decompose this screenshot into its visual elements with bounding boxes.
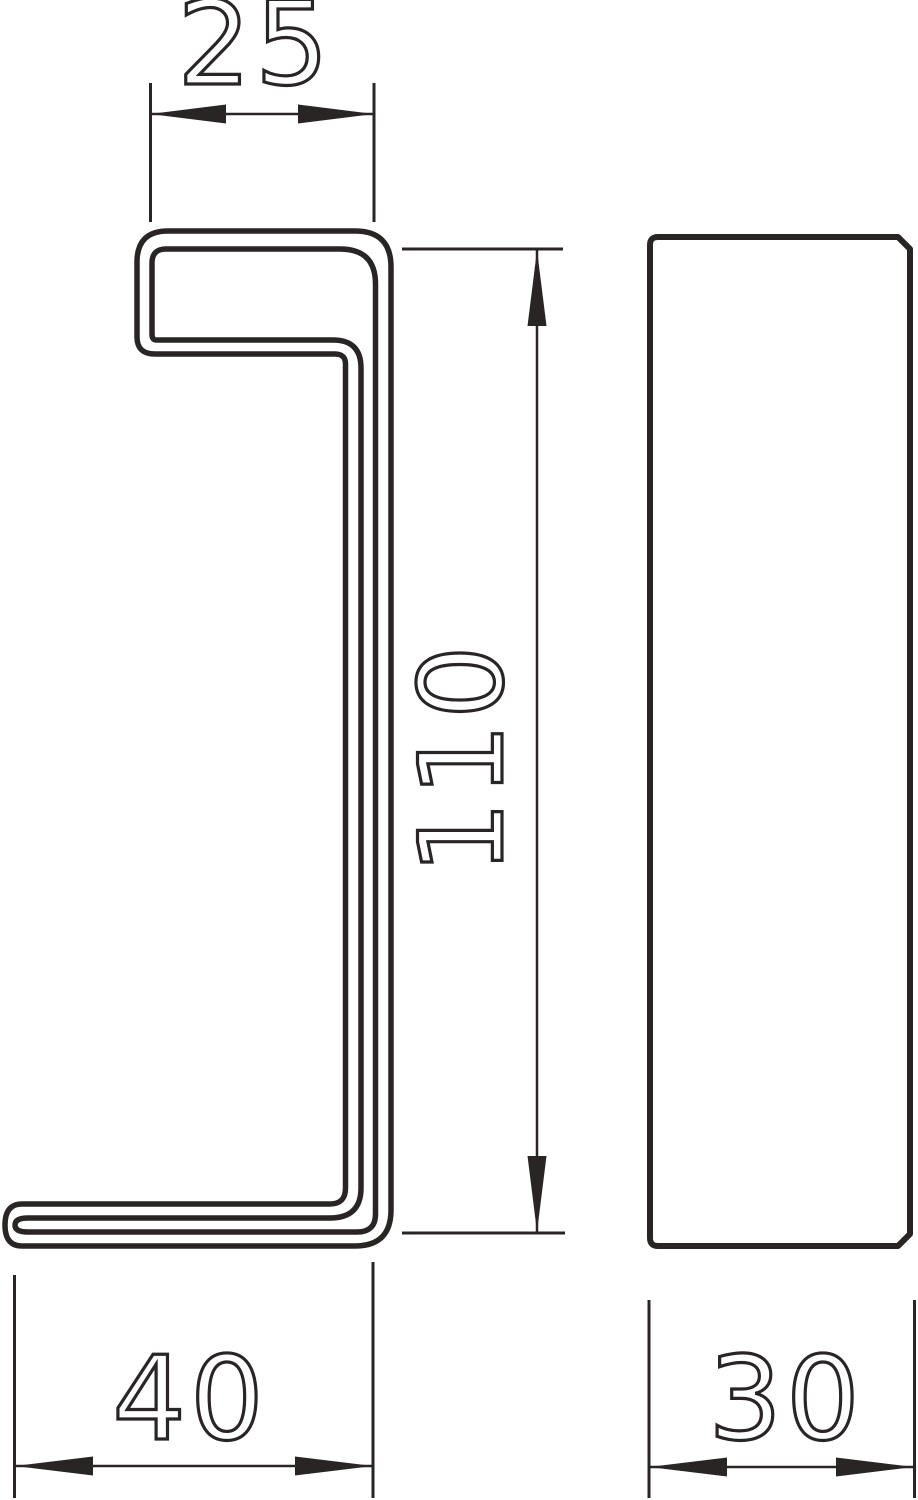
side-view-outline: [650, 237, 910, 1246]
dim-top-width-label: 25: [145, 0, 365, 103]
dim-bottom-width-label: 40: [80, 1342, 300, 1458]
profile-cross-section: [5, 231, 391, 1246]
dim-bottom-width-arrow-right: [295, 1457, 373, 1476]
dim-side-depth-label: 30: [676, 1342, 896, 1458]
technical-drawing: 25 110 40 30: [0, 0, 918, 1500]
profile-outer-contour: [5, 231, 391, 1246]
dim-height-arrow-top: [528, 250, 547, 326]
profile-inner-contour: [15, 249, 376, 1232]
dim-height-label: 110: [405, 638, 521, 878]
dim-bottom-width-arrow-left: [15, 1457, 93, 1476]
dim-height-arrow-bottom: [528, 1156, 547, 1232]
